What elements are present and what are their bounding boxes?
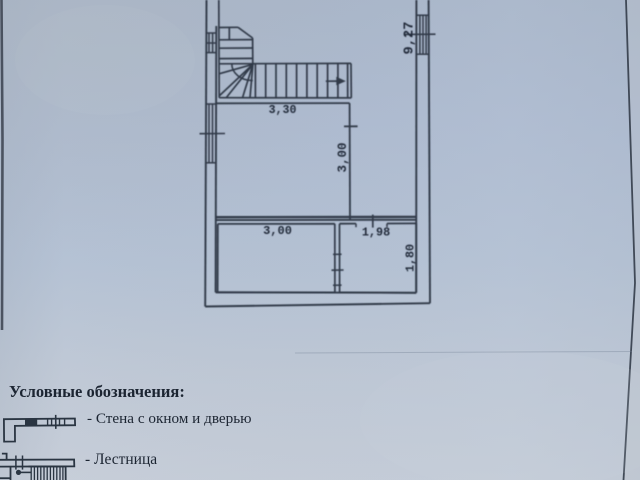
svg-text:9,27: 9,27	[403, 22, 418, 55]
svg-text:3,00: 3,00	[263, 224, 292, 238]
svg-text:- Лестница: - Лестница	[85, 451, 157, 468]
svg-text:1,80: 1,80	[403, 244, 417, 272]
svg-text:3,30: 3,30	[269, 104, 297, 117]
svg-text:Условные обозначения:: Условные обозначения:	[9, 382, 185, 401]
svg-text:3,00: 3,00	[336, 142, 350, 172]
svg-text:- Стена с окном и дверью: - Стена с окном и дверью	[87, 410, 252, 427]
svg-text:1,98: 1,98	[362, 226, 390, 240]
